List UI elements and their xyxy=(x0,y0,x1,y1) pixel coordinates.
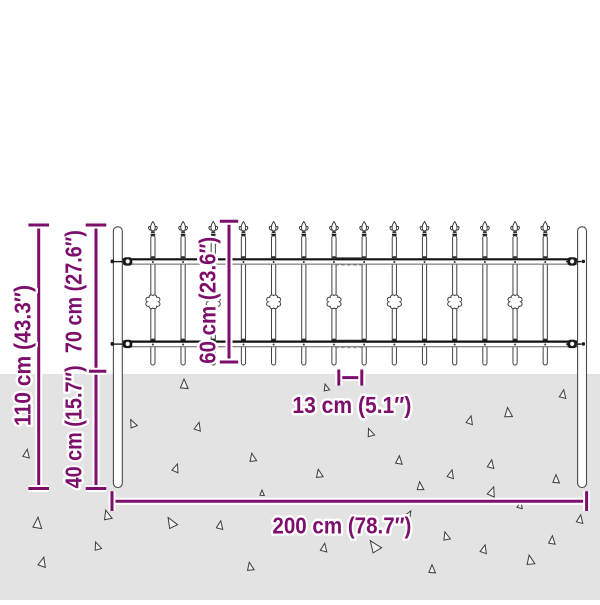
svg-text:110 cm (43.3″): 110 cm (43.3″) xyxy=(9,285,35,426)
svg-text:200 cm (78.7″): 200 cm (78.7″) xyxy=(272,513,411,539)
svg-text:60 cm (23.6″): 60 cm (23.6″) xyxy=(195,237,221,364)
svg-text:40 cm (15.7″): 40 cm (15.7″) xyxy=(61,365,87,488)
svg-text:13 cm (5.1″): 13 cm (5.1″) xyxy=(292,392,411,418)
svg-text:70 cm (27.6″): 70 cm (27.6″) xyxy=(61,230,87,353)
